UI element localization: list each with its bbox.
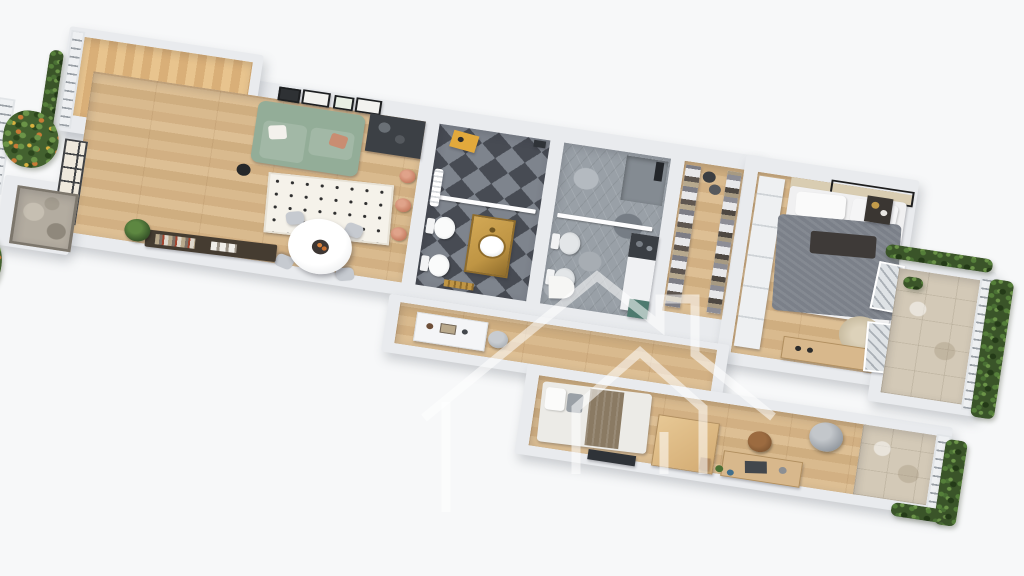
desk-lamp: [778, 466, 787, 474]
decor-cups: [210, 241, 237, 253]
gallery-frame: [333, 95, 355, 112]
shower-fixture: [654, 162, 665, 182]
faucet: [489, 227, 496, 233]
entry-doormat: [9, 185, 79, 252]
sofa-pillow-white: [268, 125, 287, 139]
round-basin: [476, 232, 507, 260]
hob-pot: [394, 134, 405, 144]
stool-items: [457, 136, 464, 143]
kitchenette-counter: [365, 113, 426, 159]
console-decor: [461, 329, 468, 335]
nightstand: [864, 195, 894, 224]
toilet: [550, 230, 583, 257]
teal-cabinet: [627, 299, 649, 320]
floorplan-render: [0, 0, 1024, 576]
washer-top: [628, 233, 659, 261]
pillow-grey: [566, 393, 584, 414]
d-shaped-mat: [548, 276, 574, 299]
laptop: [745, 461, 767, 474]
oak-wardrobe-box: [651, 414, 720, 474]
pillow: [544, 387, 566, 412]
bedroom2-balcony-floor: [853, 424, 937, 505]
apartment: [1, 26, 1024, 551]
nightstand-decor: [880, 210, 888, 217]
leaning-frame: [699, 457, 711, 470]
nightstand-decor-gold: [871, 201, 880, 209]
bidet: [419, 252, 452, 279]
dresser-knob: [807, 347, 814, 353]
console-decor-frame: [439, 323, 456, 335]
gold-vanity: [464, 214, 516, 278]
hob-pot: [378, 122, 391, 134]
console-decor: [426, 323, 434, 330]
books: [155, 234, 196, 249]
dresser-knob: [795, 345, 802, 351]
shower-tray: [620, 156, 668, 206]
brown-throw: [584, 389, 624, 450]
toilet: [425, 214, 458, 241]
